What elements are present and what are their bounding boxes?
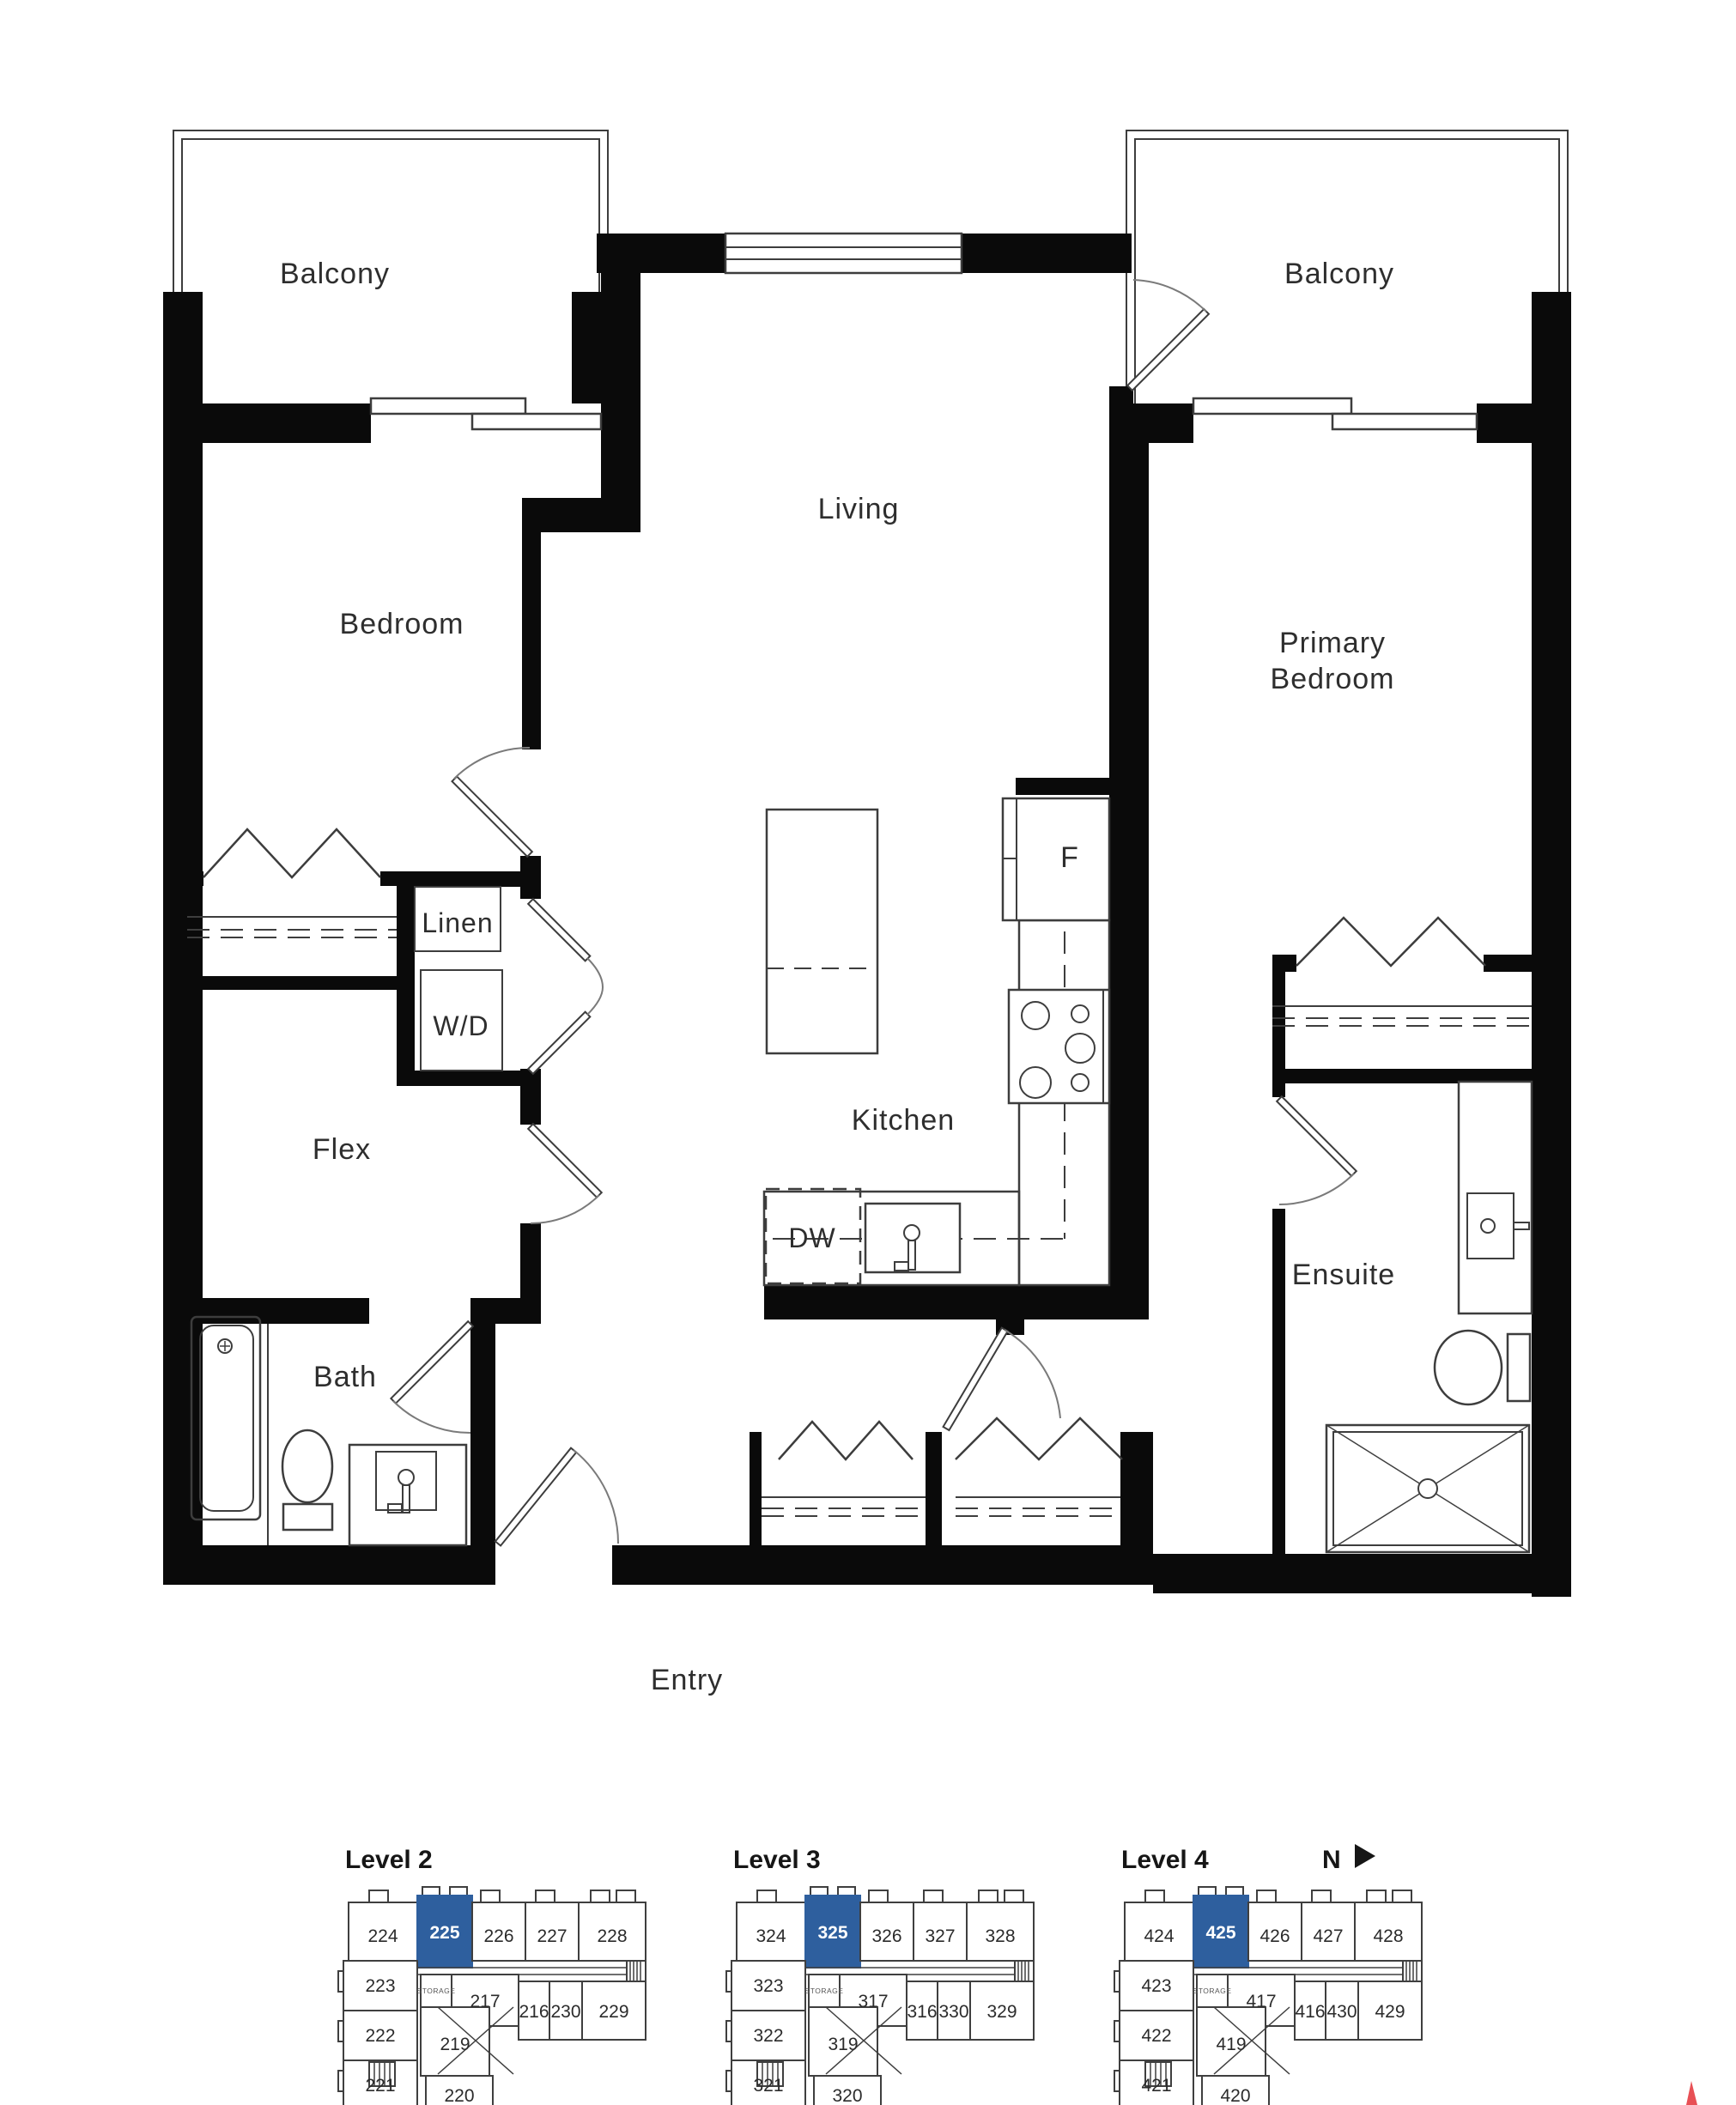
- bath-vanity: [349, 1445, 466, 1545]
- unit-number: 426: [1260, 1926, 1290, 1946]
- entry-closet-left: [762, 1422, 926, 1516]
- unit-number: 326: [871, 1926, 901, 1946]
- main-floor-plan: Balcony Balcony Living Bedroom Primary B…: [163, 130, 1571, 1696]
- unit-number: 330: [938, 2002, 968, 2022]
- living-label: Living: [818, 493, 900, 525]
- bedroom-closet: [187, 829, 397, 937]
- unit-number: 420: [1220, 2086, 1250, 2105]
- primary-bedroom-label-line2: Bedroom: [1271, 663, 1395, 695]
- unit-number: 222: [365, 2026, 395, 2046]
- bath-label: Bath: [313, 1361, 377, 1393]
- kitchen-sink: [865, 1204, 960, 1272]
- unit-number-highlighted: 225: [429, 1923, 459, 1943]
- bedroom-sliding-door: [371, 398, 601, 429]
- bedroom-label: Bedroom: [340, 608, 464, 640]
- ensuite-label: Ensuite: [1292, 1259, 1395, 1291]
- island: [767, 810, 877, 1053]
- dishwasher-label: DW: [788, 1222, 835, 1253]
- unit-number: 230: [550, 2002, 580, 2022]
- storage-label: STORAGE: [805, 1987, 844, 1995]
- linen-label: Linen: [422, 907, 493, 938]
- unit-number: 224: [367, 1926, 398, 1946]
- washer-dryer-label: W/D: [433, 1010, 489, 1041]
- unit-number: 216: [519, 2002, 549, 2022]
- ensuite-door: [1277, 1096, 1357, 1204]
- unit-number: 416: [1295, 2002, 1325, 2022]
- unit-number: 220: [444, 2086, 474, 2105]
- floorplan-page: Balcony Balcony Living Bedroom Primary B…: [0, 0, 1736, 2105]
- primary-bedroom-door: [944, 1328, 1060, 1430]
- stove: [1009, 990, 1109, 1103]
- kitchen-fixtures: [764, 798, 1109, 1285]
- unit-number: 316: [907, 2002, 937, 2022]
- ensuite-toilet: [1435, 1331, 1530, 1404]
- keyplan-level-3: Level 3 324 325 326 327 328 323 322 321 …: [726, 1846, 1034, 2105]
- ensuite-fixtures: [1326, 1082, 1532, 1552]
- north-label: N: [1322, 1846, 1341, 1874]
- flex-door: [528, 1124, 602, 1223]
- ensuite-vanity: [1459, 1082, 1532, 1313]
- living-window: [725, 234, 962, 273]
- unit-number: 322: [753, 2026, 783, 2046]
- bedroom-door: [452, 748, 531, 857]
- entry-door: [495, 1448, 618, 1546]
- bath-door: [391, 1321, 472, 1433]
- unit-number: 319: [828, 2035, 858, 2054]
- unit-number: 327: [925, 1926, 955, 1946]
- unit-number: 226: [483, 1926, 513, 1946]
- unit-number: 229: [598, 2002, 628, 2022]
- primary-sliding-door: [1193, 398, 1477, 429]
- kitchen-label: Kitchen: [852, 1104, 955, 1137]
- level-3-label: Level 3: [733, 1846, 821, 1874]
- floorplan-svg: Balcony Balcony Living Bedroom Primary B…: [0, 0, 1736, 2105]
- unit-number: 422: [1141, 2026, 1171, 2046]
- unit-number: 429: [1375, 2002, 1405, 2022]
- entry-label: Entry: [651, 1664, 723, 1696]
- level-4-label: Level 4: [1121, 1846, 1209, 1874]
- unit-number: 428: [1373, 1926, 1403, 1946]
- unit-number: 424: [1144, 1926, 1174, 1946]
- flex-label: Flex: [313, 1133, 371, 1166]
- corner-red-mark: [1686, 2081, 1697, 2105]
- entry-closet-right: [956, 1418, 1122, 1516]
- unit-number: 417: [1246, 1992, 1276, 2011]
- unit-number: 329: [986, 2002, 1017, 2022]
- unit-number: 219: [440, 2035, 470, 2054]
- unit-number: 217: [470, 1992, 500, 2011]
- storage-label: STORAGE: [417, 1987, 456, 1995]
- unit-number: 427: [1313, 1926, 1343, 1946]
- unit-number: 317: [858, 1992, 888, 2011]
- bath-toilet: [282, 1430, 332, 1530]
- keyplan-level-4: Level 4 424 425 426 427 428 423 422 421 …: [1114, 1846, 1422, 2105]
- unit-number: 423: [1141, 1976, 1171, 1996]
- level-2-label: Level 2: [345, 1846, 433, 1874]
- unit-number: 320: [832, 2086, 862, 2105]
- balcony-left-label: Balcony: [280, 258, 390, 290]
- fridge: [1003, 798, 1109, 920]
- north-indicator: N: [1322, 1844, 1375, 1874]
- fridge-label: F: [1060, 841, 1079, 874]
- unit-number: 419: [1216, 2035, 1246, 2054]
- unit-number: 324: [756, 1926, 786, 1946]
- unit-number: 430: [1326, 2002, 1357, 2022]
- balcony-door: [1127, 280, 1209, 391]
- keyplan-level-2: Level 2 224 225 226 227 228 223 222 221 …: [338, 1846, 646, 2105]
- primary-bedroom-label-line1: Primary: [1279, 627, 1386, 659]
- unit-number: 227: [537, 1926, 567, 1946]
- balcony-left-railing: [173, 130, 608, 403]
- balcony-right-label: Balcony: [1284, 258, 1394, 290]
- unit-number-highlighted: 325: [817, 1923, 847, 1943]
- unit-number-highlighted: 425: [1205, 1923, 1235, 1943]
- unit-number: 328: [985, 1926, 1015, 1946]
- unit-number: 321: [753, 2076, 783, 2096]
- unit-number: 421: [1141, 2076, 1171, 2096]
- unit-number: 223: [365, 1976, 395, 1996]
- unit-number: 323: [753, 1976, 783, 1996]
- north-arrow-icon: [1355, 1844, 1375, 1868]
- unit-number: 228: [597, 1926, 627, 1946]
- keyplans: Level 2 224 225 226 227 228 223 222 221 …: [338, 1844, 1422, 2105]
- bath-fixtures: [191, 1317, 466, 1545]
- laundry-closet-doors: [528, 899, 603, 1074]
- shower: [1326, 1425, 1529, 1552]
- unit-number: 221: [365, 2076, 395, 2096]
- storage-label: STORAGE: [1193, 1987, 1232, 1995]
